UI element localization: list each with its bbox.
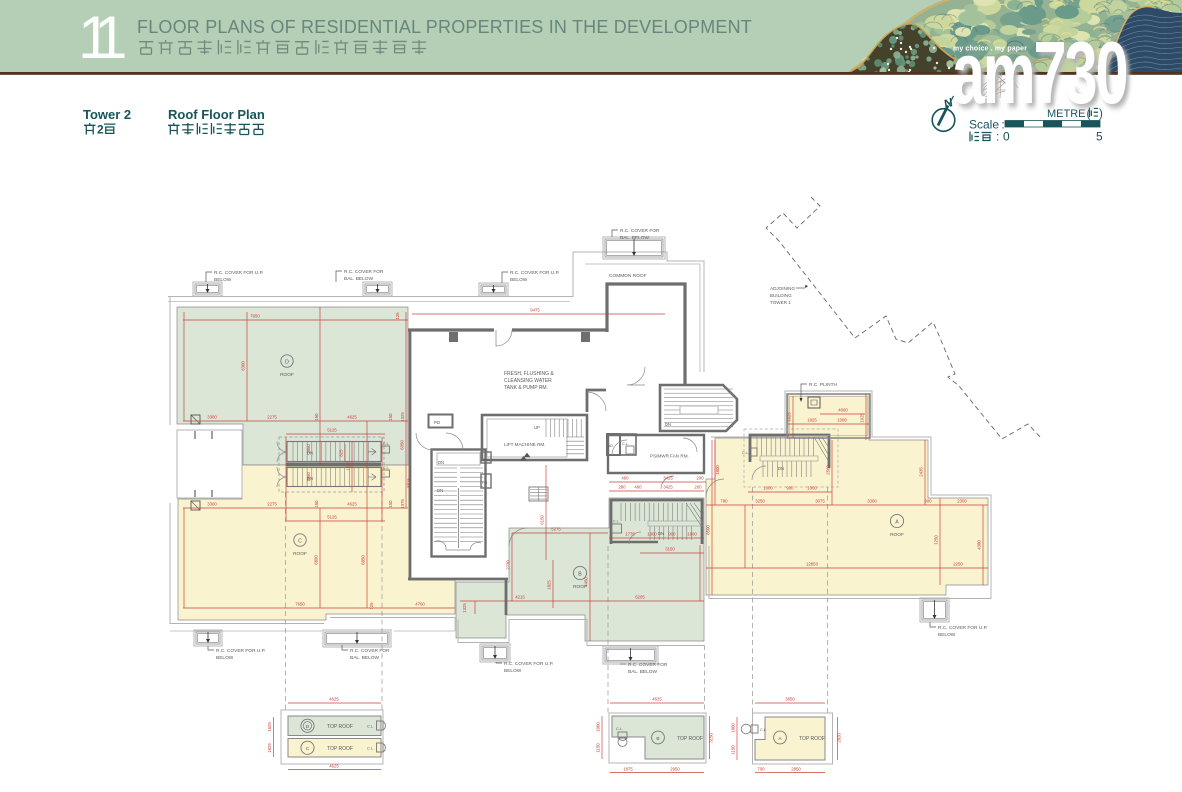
- svg-text:C.L.: C.L.: [616, 727, 623, 731]
- svg-text:3300: 3300: [867, 499, 877, 504]
- svg-text:4625: 4625: [329, 764, 339, 769]
- svg-text:BELOW: BELOW: [216, 655, 234, 661]
- svg-text:3075: 3075: [815, 499, 825, 504]
- svg-text:4625: 4625: [347, 415, 357, 420]
- svg-text:2435: 2435: [919, 467, 924, 477]
- svg-text:4380: 4380: [977, 540, 982, 550]
- svg-text:DN: DN: [778, 466, 784, 471]
- svg-text:8815: 8815: [406, 478, 411, 488]
- svg-text::: :: [996, 130, 999, 144]
- svg-text:TOP ROOF: TOP ROOF: [677, 736, 703, 742]
- svg-text:Tower 2: Tower 2: [83, 107, 131, 122]
- svg-text:1850: 1850: [306, 472, 311, 482]
- svg-text:8500: 8500: [706, 525, 711, 535]
- svg-text:AD: AD: [608, 444, 613, 448]
- svg-text:5125: 5125: [327, 428, 337, 433]
- svg-text:280: 280: [618, 485, 626, 490]
- svg-text:1150: 1150: [596, 743, 601, 753]
- svg-text:2560: 2560: [826, 465, 831, 475]
- svg-text:BAL. BELOW: BAL. BELOW: [620, 235, 650, 241]
- svg-text:1625: 1625: [267, 722, 272, 732]
- svg-text:3650: 3650: [785, 697, 795, 702]
- svg-text:my choice . my paper: my choice . my paper: [953, 46, 1027, 53]
- svg-text:D: D: [285, 359, 289, 365]
- svg-text:PD: PD: [482, 481, 488, 485]
- svg-text:2820: 2820: [837, 733, 842, 743]
- svg-text:150: 150: [388, 413, 393, 421]
- svg-text:1800: 1800: [687, 532, 697, 537]
- svg-text:2250: 2250: [953, 562, 963, 567]
- svg-text:1: 1: [94, 4, 127, 71]
- svg-text:3150: 3150: [709, 733, 714, 743]
- svg-text:am730: am730: [952, 23, 1127, 121]
- svg-text:AD: AD: [483, 458, 489, 462]
- svg-text:Roof Floor Plan: Roof Floor Plan: [168, 107, 265, 122]
- svg-text:C.L.: C.L.: [383, 442, 390, 446]
- svg-text:2: 2: [97, 123, 104, 137]
- svg-text:3150: 3150: [665, 547, 675, 552]
- svg-text:1000: 1000: [596, 722, 601, 732]
- svg-text:C.L.: C.L.: [760, 728, 767, 732]
- svg-text:1800: 1800: [731, 723, 736, 733]
- svg-text:1800: 1800: [647, 532, 657, 537]
- svg-text:2275: 2275: [267, 502, 277, 507]
- svg-text:6350: 6350: [400, 440, 405, 450]
- svg-text:R.C. COVER FOR U.P.: R.C. COVER FOR U.P.: [510, 270, 560, 276]
- svg-text:BAL. BELOW: BAL. BELOW: [350, 655, 380, 661]
- svg-text:C.L.: C.L.: [367, 747, 374, 751]
- svg-text:7650: 7650: [295, 602, 305, 607]
- svg-text:4760: 4760: [415, 602, 425, 607]
- svg-text:6890: 6890: [314, 555, 319, 565]
- svg-text:1250: 1250: [934, 535, 939, 545]
- svg-text:TOWER 1: TOWER 1: [770, 300, 791, 305]
- svg-text:900: 900: [924, 499, 932, 504]
- svg-text:BAL. BELOW: BAL. BELOW: [628, 669, 658, 675]
- svg-text:UP: UP: [534, 425, 540, 430]
- svg-text:BELOW: BELOW: [504, 668, 522, 674]
- svg-text:LIFT MACHINE RM.: LIFT MACHINE RM.: [504, 442, 546, 447]
- svg-text:A: A: [895, 519, 899, 525]
- svg-text:4625: 4625: [652, 697, 662, 702]
- svg-text:1000: 1000: [763, 486, 773, 491]
- svg-text:5275: 5275: [551, 527, 561, 532]
- svg-text:6850: 6850: [361, 555, 366, 565]
- svg-text:DN: DN: [658, 531, 664, 536]
- svg-text:4215: 4215: [515, 595, 525, 600]
- svg-text:200: 200: [694, 485, 702, 490]
- svg-text:1150: 1150: [731, 745, 736, 755]
- svg-text:C: C: [298, 538, 302, 544]
- svg-text:460: 460: [634, 485, 642, 490]
- svg-text:2275: 2275: [267, 415, 277, 420]
- svg-text:R.C. COVER FOR: R.C. COVER FOR: [620, 228, 660, 234]
- svg-text:ADJOINING: ADJOINING: [770, 286, 795, 291]
- svg-text:150: 150: [314, 500, 319, 508]
- svg-text:BUILDING: BUILDING: [770, 293, 792, 298]
- svg-text:B: B: [656, 736, 659, 742]
- svg-text:TOP ROOF: TOP ROOF: [327, 724, 353, 730]
- svg-text:BAL. BELOW: BAL. BELOW: [344, 276, 374, 282]
- svg-text:150: 150: [388, 500, 393, 508]
- svg-text:PD: PD: [434, 420, 440, 425]
- svg-text:TOP ROOF: TOP ROOF: [327, 746, 353, 752]
- svg-text:DN: DN: [437, 488, 443, 493]
- svg-text:BELOW: BELOW: [214, 277, 232, 283]
- svg-text:R.C. COVER FOR: R.C. COVER FOR: [344, 269, 384, 275]
- svg-text:R.C. COVER FOR U.P.: R.C. COVER FOR U.P.: [938, 625, 988, 631]
- svg-text:12850: 12850: [806, 562, 819, 567]
- svg-text:TOP ROOF: TOP ROOF: [799, 736, 825, 742]
- svg-text:6300: 6300: [241, 361, 246, 371]
- svg-text:7650: 7650: [250, 314, 260, 319]
- svg-text:R.C. COVER FOR: R.C. COVER FOR: [350, 648, 390, 654]
- svg-text:1325: 1325: [462, 603, 467, 613]
- svg-text:150: 150: [314, 413, 319, 421]
- svg-text:DN: DN: [665, 422, 671, 427]
- svg-text:5: 5: [1096, 130, 1103, 144]
- svg-text:CLEANSING WATER: CLEANSING WATER: [504, 378, 552, 384]
- svg-text:FRESH, FLUSHING &: FRESH, FLUSHING &: [504, 371, 554, 377]
- svg-text:2850: 2850: [791, 767, 801, 772]
- svg-text:0: 0: [1003, 130, 1010, 144]
- svg-text:R.C. COVER FOR U.P.: R.C. COVER FOR U.P.: [216, 648, 266, 654]
- svg-text:1325: 1325: [400, 412, 405, 422]
- svg-text:1825: 1825: [547, 580, 552, 590]
- svg-text:C.L.: C.L.: [367, 725, 374, 729]
- svg-text:R.C. COVER FOR U.P.: R.C. COVER FOR U.P.: [214, 270, 264, 276]
- svg-text:460: 460: [621, 476, 629, 481]
- svg-text:R.C. COVER FOR U.P.: R.C. COVER FOR U.P.: [504, 661, 554, 667]
- svg-text:200: 200: [696, 476, 704, 481]
- svg-text:FLOOR PLANS OF RESIDENTIAL PRO: FLOOR PLANS OF RESIDENTIAL PROPERTIES IN…: [137, 17, 752, 37]
- svg-text:6205: 6205: [635, 595, 645, 600]
- svg-text:3300: 3300: [207, 415, 217, 420]
- svg-text:DN: DN: [438, 460, 444, 465]
- svg-text:3425: 3425: [663, 476, 673, 481]
- svg-text:D: D: [306, 724, 310, 730]
- svg-text:ROOF: ROOF: [280, 372, 294, 378]
- svg-text:900: 900: [786, 486, 794, 491]
- svg-text:1000: 1000: [837, 418, 847, 423]
- svg-text:900: 900: [668, 532, 676, 537]
- svg-text:C.L.: C.L.: [742, 451, 749, 455]
- svg-text:C.L.: C.L.: [613, 520, 620, 524]
- svg-text:TANK & PUMP RM.: TANK & PUMP RM.: [504, 385, 548, 391]
- svg-text:4625: 4625: [347, 502, 357, 507]
- svg-text:2950: 2950: [670, 767, 680, 772]
- svg-text:1925: 1925: [787, 412, 792, 422]
- svg-text:780: 780: [720, 499, 728, 504]
- svg-text:1800: 1800: [715, 465, 720, 475]
- svg-text:2300: 2300: [957, 499, 967, 504]
- svg-text:B: B: [578, 571, 582, 577]
- svg-text:ROOF: ROOF: [293, 551, 307, 557]
- svg-text:700: 700: [757, 767, 765, 772]
- svg-text:3425: 3425: [663, 485, 673, 490]
- svg-text:4625: 4625: [329, 697, 339, 702]
- svg-text:1775: 1775: [625, 532, 635, 537]
- svg-text:9475: 9475: [530, 308, 540, 313]
- svg-text:ROOF: ROOF: [573, 584, 587, 590]
- svg-text:1825: 1825: [807, 418, 817, 423]
- svg-text:1535: 1535: [346, 461, 351, 471]
- svg-text:PS/MWR FAN RM.: PS/MWR FAN RM.: [650, 454, 689, 459]
- svg-text:COMMON ROOF: COMMON ROOF: [609, 273, 647, 279]
- svg-text:ROOF: ROOF: [890, 532, 904, 538]
- svg-text:C.L.: C.L.: [383, 466, 390, 470]
- svg-text:1825: 1825: [267, 743, 272, 753]
- svg-text:1000: 1000: [807, 486, 817, 491]
- svg-text:1850: 1850: [306, 444, 311, 454]
- svg-text:5125: 5125: [327, 515, 337, 520]
- svg-text:2730: 2730: [506, 560, 511, 570]
- svg-text:6150: 6150: [540, 515, 545, 525]
- svg-text:3300: 3300: [207, 502, 217, 507]
- svg-text:125: 125: [369, 602, 374, 610]
- svg-text:BELOW: BELOW: [938, 632, 956, 638]
- svg-text:R.C. PLINTH: R.C. PLINTH: [809, 382, 838, 388]
- svg-text:C: C: [306, 746, 310, 752]
- svg-text:825: 825: [339, 449, 344, 457]
- svg-text:1875: 1875: [623, 767, 633, 772]
- svg-text:C.L.: C.L.: [622, 442, 629, 446]
- svg-text:BELOW: BELOW: [510, 277, 528, 283]
- svg-text:1375: 1375: [400, 499, 405, 509]
- svg-text:R.C. COVER FOR: R.C. COVER FOR: [628, 662, 668, 668]
- svg-text:4000: 4000: [838, 408, 848, 413]
- svg-text:3250: 3250: [755, 499, 765, 504]
- svg-text:125: 125: [395, 312, 400, 320]
